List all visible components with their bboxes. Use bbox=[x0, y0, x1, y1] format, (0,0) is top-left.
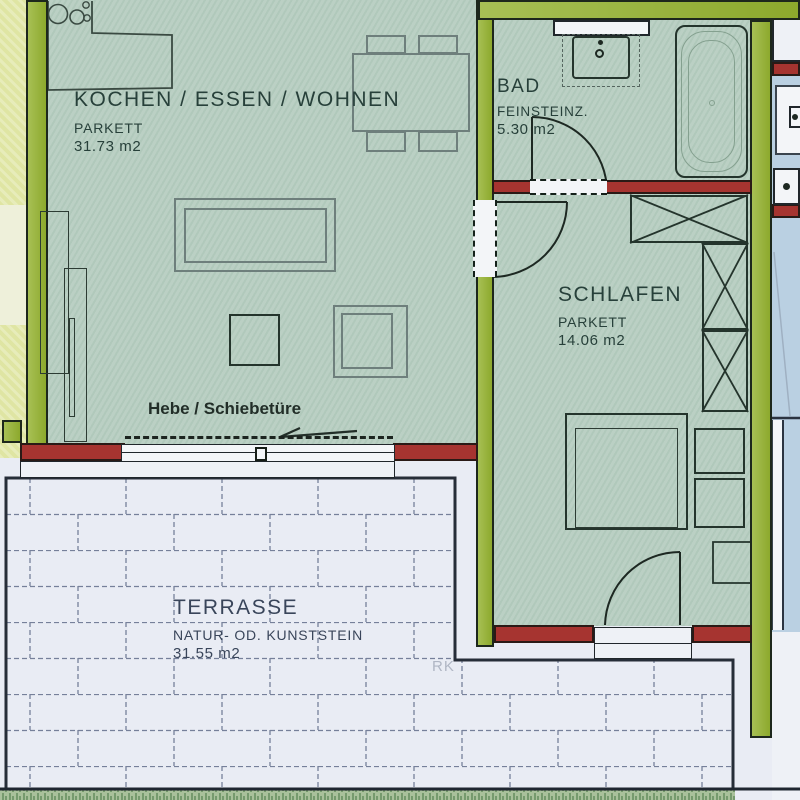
bad-title: BAD bbox=[497, 76, 588, 98]
sliding-door-handle bbox=[255, 447, 267, 461]
outside-left-patch bbox=[0, 205, 26, 325]
room-label-terrasse: TERRASSE NATUR- OD. KUNSTSTEIN 31.55 m2 bbox=[173, 596, 363, 662]
terrasse-floor: NATUR- OD. KUNSTSTEIN bbox=[173, 627, 363, 643]
wardrobe-icon-right-1 bbox=[702, 243, 748, 330]
bedroom-terrace-threshold-line bbox=[594, 643, 692, 644]
wall-red-neighbor-1 bbox=[772, 62, 800, 76]
kochen-floor: PARKETT bbox=[74, 120, 400, 136]
nightstand-icon-1 bbox=[694, 428, 745, 474]
bed-mattress bbox=[575, 428, 678, 528]
wall-red-bath-right bbox=[605, 180, 752, 194]
schlafen-floor: PARKETT bbox=[558, 314, 682, 330]
wall-red-sliding-left bbox=[20, 443, 125, 461]
neighbor-valve-dot bbox=[792, 114, 798, 120]
wall-red-neighbor-2 bbox=[772, 204, 800, 218]
terrasse-title: TERRASSE bbox=[173, 596, 363, 620]
chair-icon-2 bbox=[418, 35, 458, 54]
media-unit-icon-2 bbox=[64, 268, 87, 442]
kochen-area: 31.73 m2 bbox=[74, 138, 400, 155]
terrace-step bbox=[20, 461, 395, 478]
wall-red-bedroom-right bbox=[692, 625, 752, 643]
floor-plan: KOCHEN / ESSEN / WOHNEN PARKETT 31.73 m2… bbox=[0, 0, 800, 800]
bedroom-door-opening bbox=[473, 200, 497, 277]
bad-floor: FEINSTEINZ. bbox=[497, 104, 588, 119]
wall-right-exterior bbox=[750, 20, 772, 738]
armchair-inner bbox=[341, 313, 393, 369]
bad-area: 5.30 m2 bbox=[497, 121, 588, 138]
sliding-door-dashed-line bbox=[125, 436, 393, 439]
neighbor-window-strip bbox=[772, 420, 784, 630]
wall-top bbox=[478, 0, 800, 20]
wall-red-bedroom-left bbox=[494, 625, 594, 643]
faucet-icon bbox=[595, 49, 604, 58]
chair-icon-4 bbox=[418, 131, 458, 152]
schlafen-title: SCHLAFEN bbox=[558, 283, 682, 307]
terrasse-area: 31.55 m2 bbox=[173, 645, 363, 662]
room-label-schlafen: SCHLAFEN PARKETT 14.06 m2 bbox=[558, 283, 682, 349]
nightstand-icon-2 bbox=[694, 478, 745, 528]
neighbor-top-gap bbox=[772, 20, 800, 62]
room-label-bad: BAD FEINSTEINZ. 5.30 m2 bbox=[497, 76, 588, 138]
neighbor-area-lower bbox=[772, 632, 800, 800]
wall-left-corner bbox=[2, 420, 22, 443]
wardrobe-icon-top bbox=[630, 195, 748, 243]
room-label-kochen: KOCHEN / ESSEN / WOHNEN PARKETT 31.73 m2 bbox=[74, 88, 400, 155]
media-unit-icon-3 bbox=[69, 318, 75, 417]
chair-icon-1 bbox=[366, 35, 406, 54]
wardrobe-icon-right-2 bbox=[702, 330, 748, 412]
watermark: RK bbox=[432, 658, 455, 675]
wall-red-sliding-right bbox=[393, 443, 478, 461]
wall-kitchen-bedroom bbox=[476, 0, 494, 647]
bathroom-door-opening bbox=[530, 179, 607, 195]
faucet-dot-icon bbox=[598, 40, 603, 45]
kochen-title: KOCHEN / ESSEN / WOHNEN bbox=[74, 88, 400, 112]
coffee-table-icon bbox=[229, 314, 280, 366]
sliding-door-label: Hebe / Schiebetüre bbox=[148, 399, 301, 419]
bathtub-drain-icon bbox=[709, 100, 715, 106]
wall-red-bath-left bbox=[492, 180, 532, 194]
neighbor-square-dot bbox=[783, 183, 790, 190]
schlafen-area: 14.06 m2 bbox=[558, 332, 682, 349]
sofa-inner bbox=[184, 208, 327, 263]
